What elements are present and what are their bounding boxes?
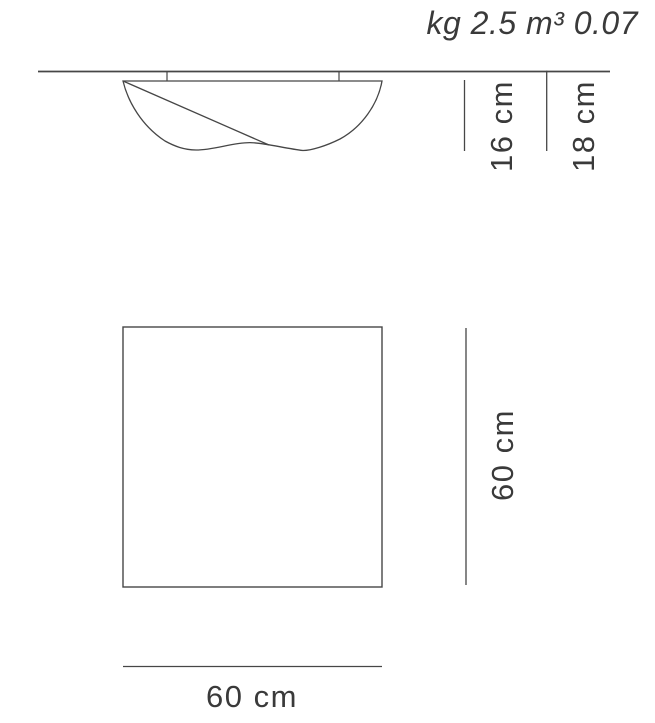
dimension-label-front-width: 60 cm [206, 679, 298, 715]
dimension-drawing [0, 0, 655, 723]
dimension-label-total-height: 18 cm [566, 80, 602, 172]
product-dimension-sheet: kg 2.5 m³ 0.07 16 cm 18 cm 60 cm 60 cm [0, 0, 655, 723]
dimension-label-fixture-height: 16 cm [484, 80, 520, 172]
lamp-fold-edge [123, 81, 269, 145]
dimension-label-front-height: 60 cm [485, 409, 521, 501]
weight-volume-spec: kg 2.5 m³ 0.07 [426, 5, 638, 42]
front-view-square [123, 327, 382, 587]
lamp-profile-outline [123, 81, 382, 151]
